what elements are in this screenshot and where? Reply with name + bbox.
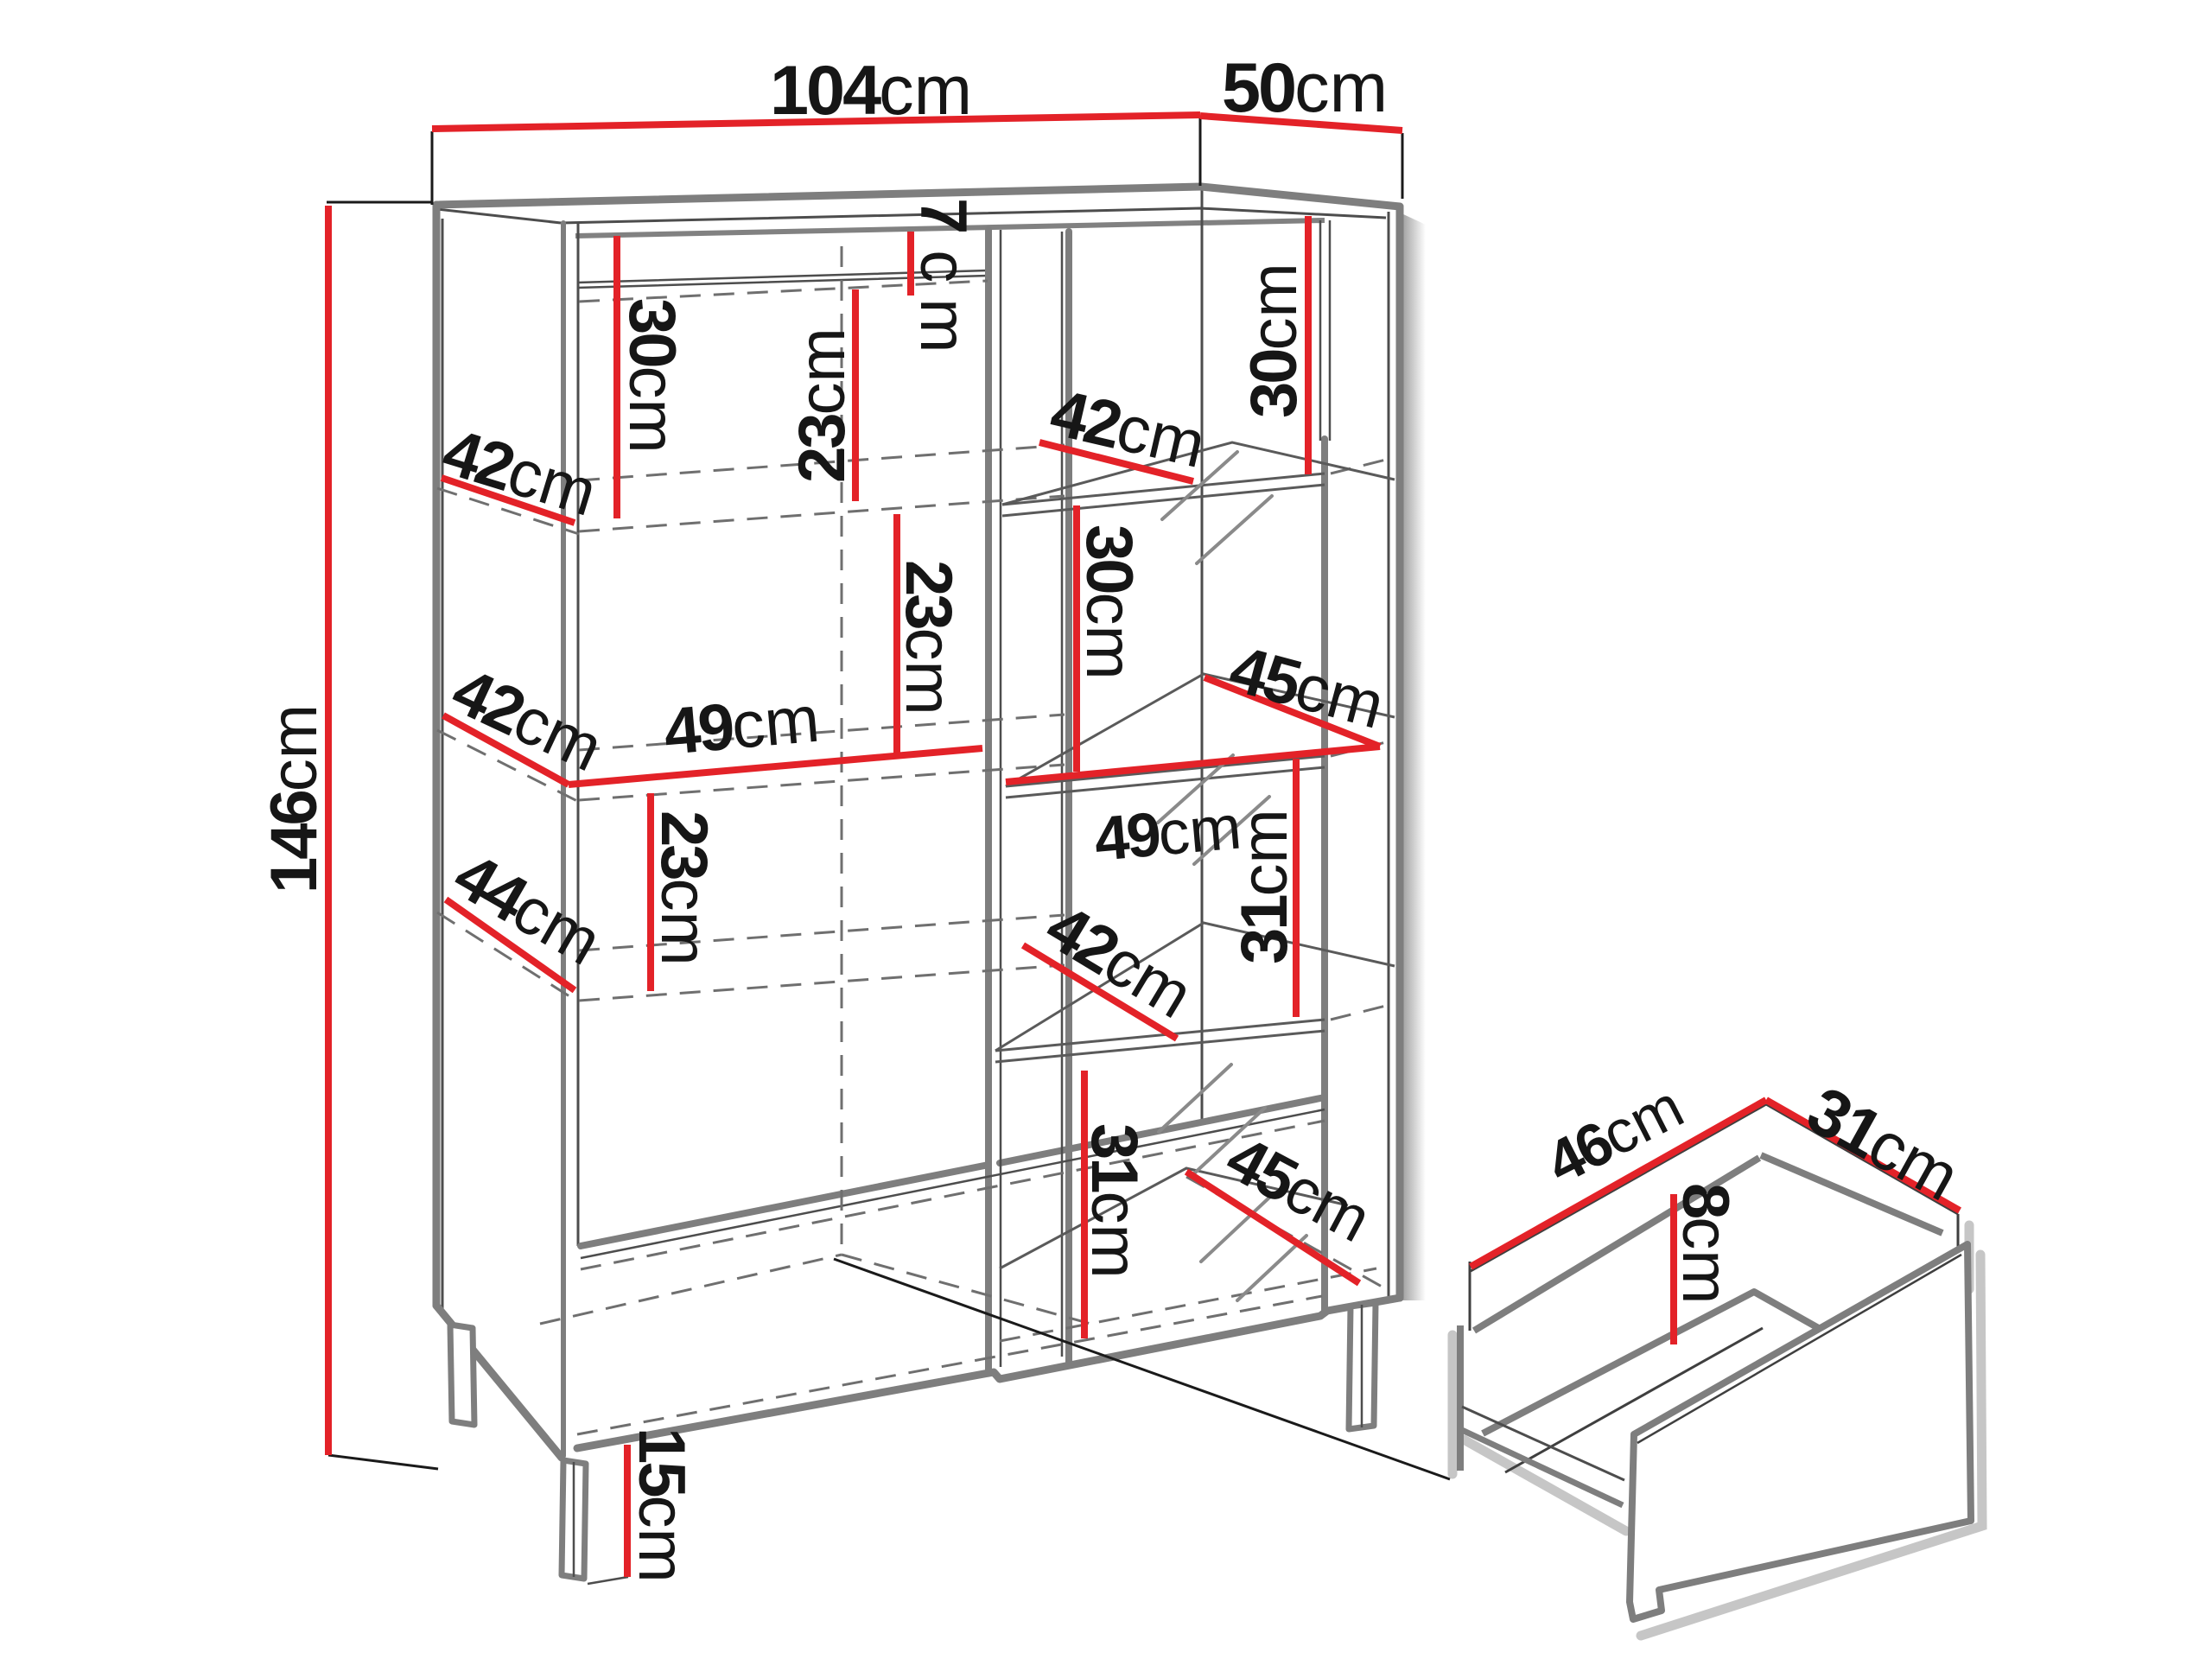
- svg-text:49cm: 49cm: [1091, 792, 1243, 874]
- svg-text:7cm: 7cm: [906, 198, 980, 369]
- svg-text:49cm: 49cm: [661, 683, 823, 769]
- svg-text:146cm: 146cm: [257, 704, 331, 893]
- svg-text:31cm: 31cm: [1077, 1123, 1151, 1279]
- svg-text:23cm: 23cm: [892, 560, 965, 715]
- svg-text:23cm: 23cm: [647, 810, 721, 966]
- svg-text:30cm: 30cm: [615, 298, 689, 454]
- svg-text:15cm: 15cm: [625, 1427, 698, 1583]
- svg-text:8cm: 8cm: [1669, 1183, 1742, 1305]
- svg-text:30cm: 30cm: [1237, 263, 1311, 418]
- svg-text:30cm: 30cm: [1072, 524, 1146, 680]
- svg-text:104cm: 104cm: [770, 52, 972, 130]
- svg-text:23cm: 23cm: [785, 327, 859, 483]
- svg-text:50cm: 50cm: [1222, 49, 1388, 127]
